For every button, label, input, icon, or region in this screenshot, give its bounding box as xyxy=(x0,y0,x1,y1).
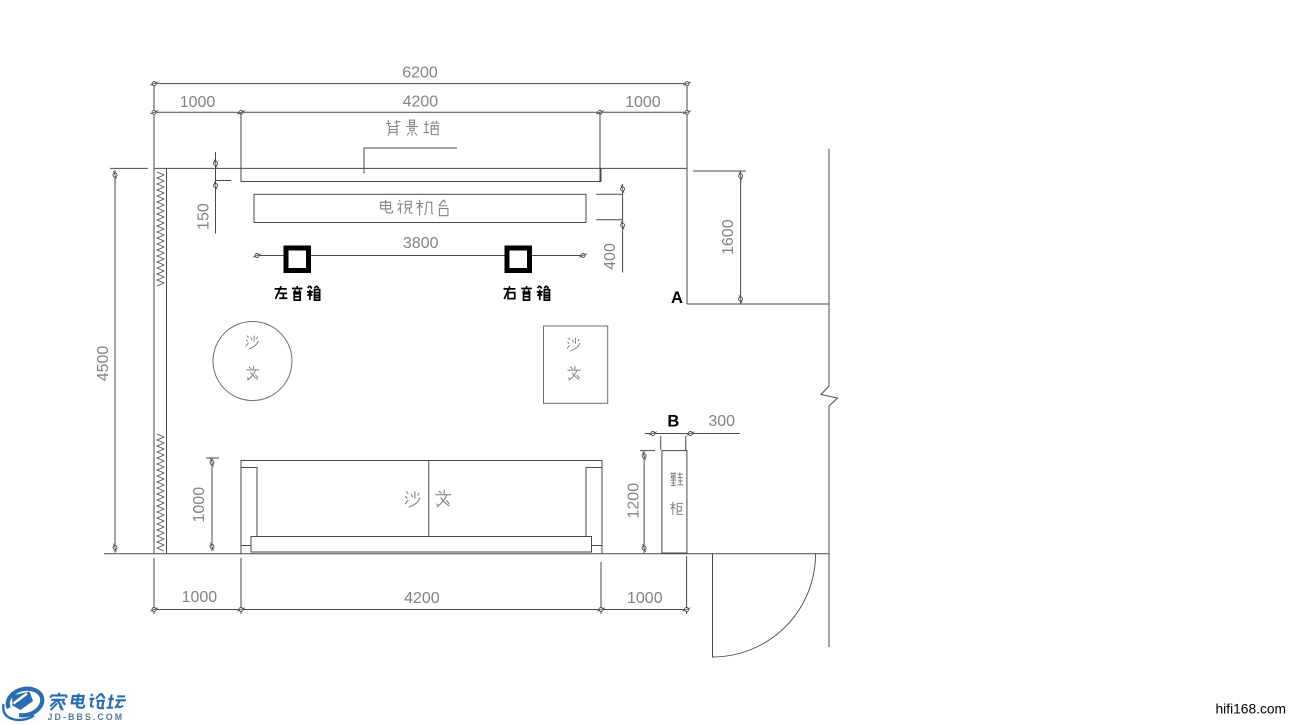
svg-text:4200: 4200 xyxy=(404,590,440,607)
svg-text:1600: 1600 xyxy=(720,219,737,255)
svg-text:150: 150 xyxy=(195,203,212,230)
svg-text:4500: 4500 xyxy=(95,346,112,382)
svg-text:1000: 1000 xyxy=(182,589,218,606)
svg-text:hifi168.com: hifi168.com xyxy=(1216,702,1287,717)
svg-text:1000: 1000 xyxy=(180,94,216,111)
svg-text:300: 300 xyxy=(708,413,735,430)
svg-text:A: A xyxy=(671,289,683,307)
svg-text:1000: 1000 xyxy=(625,94,661,111)
svg-text:1000: 1000 xyxy=(191,487,208,523)
svg-text:JD-BBS.COM: JD-BBS.COM xyxy=(48,712,125,722)
svg-text:4200: 4200 xyxy=(403,94,439,111)
svg-text:1000: 1000 xyxy=(627,590,663,607)
svg-text:6200: 6200 xyxy=(402,64,438,81)
svg-text:400: 400 xyxy=(602,243,619,270)
svg-text:3800: 3800 xyxy=(403,235,439,252)
svg-text:B: B xyxy=(667,413,679,431)
svg-text:1200: 1200 xyxy=(626,483,643,519)
